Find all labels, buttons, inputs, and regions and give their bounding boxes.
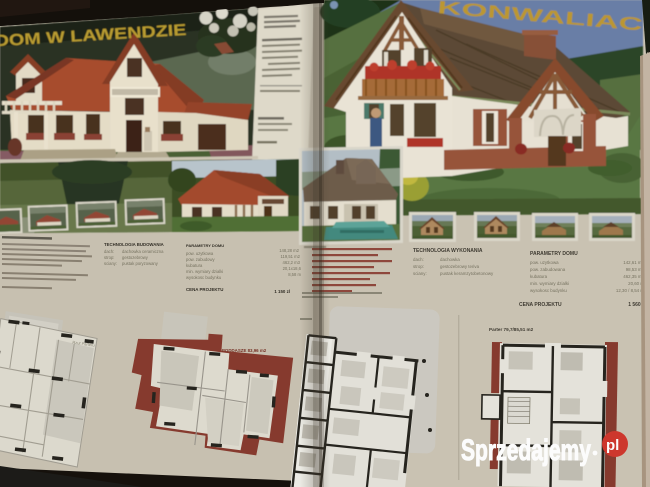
svg-text:strop:: strop: (413, 264, 424, 269)
svg-text:Parter 79,7/85,51 m2: Parter 79,7/85,51 m2 (489, 327, 534, 332)
svg-text:pl: pl (606, 437, 619, 454)
svg-text:1 150 zl: 1 150 zl (274, 289, 290, 294)
svg-text:sciany:: sciany: (413, 271, 427, 276)
svg-text:gestozebrowy teriva: gestozebrowy teriva (440, 264, 480, 269)
svg-text:TECHNOLOGIA WYKONANIA: TECHNOLOGIA WYKONANIA (413, 248, 483, 254)
svg-text:min. wymiary dzialki: min. wymiary dzialki (186, 269, 223, 274)
svg-text:kubatura: kubatura (186, 263, 203, 268)
svg-text:TECHNOLOGIA BUDOWANIA: TECHNOLOGIA BUDOWANIA (104, 242, 164, 247)
svg-text:dachowka: dachowka (440, 257, 460, 262)
svg-text:sciany:: sciany: (104, 261, 117, 266)
svg-text:PARAMETRY DOMU: PARAMETRY DOMU (186, 243, 224, 248)
svg-text:kubatura: kubatura (530, 274, 548, 279)
svg-text:119,51 m2: 119,51 m2 (281, 254, 301, 259)
svg-text:CENA PROJEKTU: CENA PROJEKTU (519, 302, 562, 308)
svg-text:CENA PROJEKTU: CENA PROJEKTU (186, 287, 223, 292)
svg-text:wysokosc budynku: wysokosc budynku (186, 275, 222, 280)
svg-text:Sprzedajemy: Sprzedajemy (461, 434, 591, 467)
svg-text:pow. zabudowana: pow. zabudowana (530, 267, 566, 272)
svg-text:pustak poryzowany: pustak poryzowany (122, 261, 159, 266)
svg-text:148,28 m2: 148,28 m2 (279, 248, 299, 253)
svg-text:PARAMETRY DOMU: PARAMETRY DOMU (530, 251, 578, 257)
svg-text:dach:: dach: (104, 249, 114, 254)
svg-text:pow. zabudowy: pow. zabudowy (186, 257, 216, 262)
svg-text:pow. uzytkowa: pow. uzytkowa (186, 251, 214, 256)
svg-text:dach:: dach: (413, 257, 424, 262)
svg-text:8,58 m: 8,58 m (288, 272, 301, 277)
svg-text:pustak keramzytobetonowy: pustak keramzytobetonowy (440, 271, 494, 276)
svg-text:462,2 m3: 462,2 m3 (283, 260, 301, 265)
svg-text:PODDASZE 83,96 m2: PODDASZE 83,96 m2 (222, 348, 267, 353)
svg-text:strop:: strop: (104, 255, 114, 260)
svg-text:20,1x18,6: 20,1x18,6 (283, 266, 302, 271)
svg-text:dachowka ceramiczna: dachowka ceramiczna (122, 249, 164, 254)
svg-text:wysokosc budynku: wysokosc budynku (530, 288, 567, 293)
svg-text:pow. uzytkowa: pow. uzytkowa (530, 260, 559, 265)
svg-text:gestozebrowy: gestozebrowy (122, 255, 149, 260)
svg-text:min. wymiary dzialki: min. wymiary dzialki (530, 281, 569, 286)
svg-text:12,30 / 8,54 m: 12,30 / 8,54 m (616, 288, 644, 293)
